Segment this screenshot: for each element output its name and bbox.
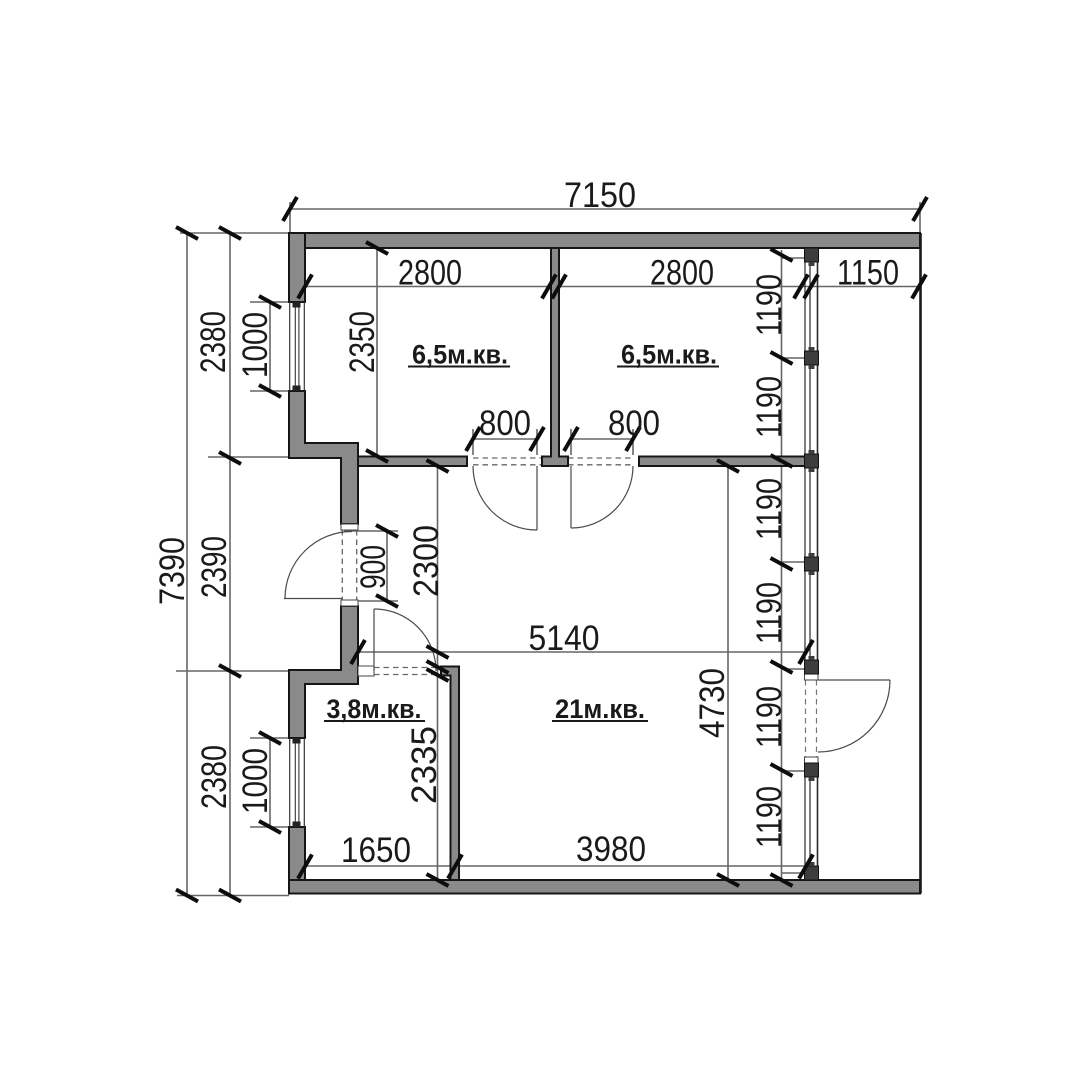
svg-text:7150: 7150 [564,176,636,215]
svg-text:6,5м.кв.: 6,5м.кв. [621,340,717,370]
svg-text:4730: 4730 [693,668,732,738]
svg-text:1000: 1000 [236,748,275,814]
svg-text:3980: 3980 [576,830,646,869]
svg-text:2350: 2350 [343,311,382,373]
svg-text:1000: 1000 [236,312,275,378]
svg-text:1190: 1190 [750,478,789,540]
svg-text:2390: 2390 [195,536,234,598]
svg-text:3,8м.кв.: 3,8м.кв. [327,694,422,724]
svg-text:800: 800 [608,404,660,443]
svg-text:6,5м.кв.: 6,5м.кв. [412,340,508,370]
svg-text:1190: 1190 [750,274,789,336]
svg-text:7390: 7390 [153,537,192,605]
svg-text:21м.кв.: 21м.кв. [555,694,645,724]
svg-text:1190: 1190 [750,686,789,748]
svg-text:900: 900 [354,545,393,589]
svg-text:1190: 1190 [750,582,789,644]
svg-text:2300: 2300 [407,525,446,597]
svg-text:1190: 1190 [750,376,789,438]
svg-text:1190: 1190 [750,786,789,848]
svg-text:800: 800 [479,404,531,443]
svg-text:2380: 2380 [194,311,233,373]
svg-text:1650: 1650 [341,831,411,870]
svg-text:2380: 2380 [195,745,234,809]
svg-text:5140: 5140 [529,619,600,658]
svg-text:2800: 2800 [650,254,714,293]
svg-text:2800: 2800 [398,254,462,293]
svg-text:1150: 1150 [837,254,899,293]
svg-text:2335: 2335 [405,726,444,804]
